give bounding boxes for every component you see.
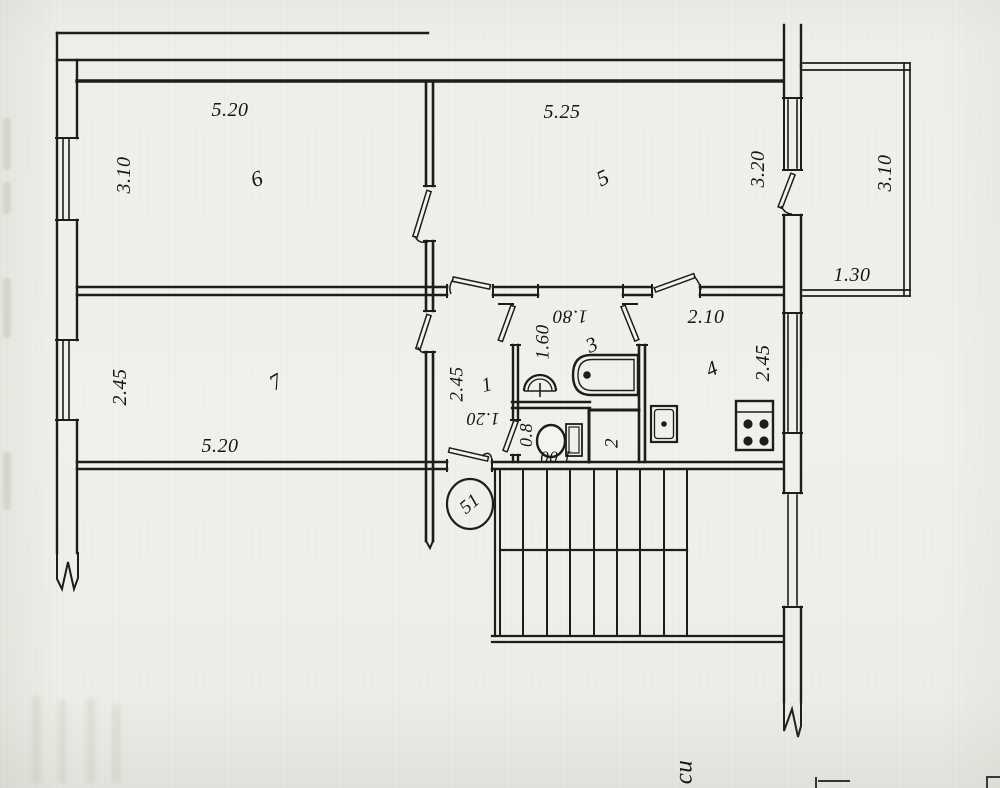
kitchen-sink-icon xyxy=(651,406,677,442)
door-leaf-icon xyxy=(498,304,515,342)
stove-icon xyxy=(736,401,773,450)
dimension-label: 3.10 xyxy=(114,157,134,194)
door-leaf-icon xyxy=(450,277,491,294)
margin-note: си xyxy=(672,760,697,785)
dimension-label: 5.20 xyxy=(212,100,249,120)
bath-sink-icon xyxy=(524,375,556,397)
exterior-walls xyxy=(57,25,801,737)
window-icon xyxy=(783,493,802,607)
dimension-label: 3.20 xyxy=(748,151,768,188)
window-icon xyxy=(56,340,78,420)
room-number-2: 2 xyxy=(603,438,622,448)
bathtub-icon xyxy=(573,355,638,395)
door-leaf-icon xyxy=(621,304,639,341)
scan-stamp-marks xyxy=(816,777,1000,788)
wc-compartment xyxy=(589,409,639,462)
window-icon xyxy=(783,313,802,433)
wall-break-symbol xyxy=(784,702,801,737)
dimension-label: 1.00 xyxy=(540,449,572,466)
dimension-label: 2.45 xyxy=(448,366,467,401)
dimension-label: 1.60 xyxy=(534,324,553,359)
dimension-label: 5.20 xyxy=(202,436,239,456)
floor-plan-scan: 5.20 3.10 6 5.25 5 3.20 3.10 1.30 2.10 4… xyxy=(0,0,1000,788)
dimension-label: 0.8 xyxy=(517,423,535,447)
dimension-label: 1.80 xyxy=(552,307,587,326)
dimension-label: 2.45 xyxy=(110,369,130,406)
dimension-label: 2.10 xyxy=(688,307,725,327)
door-leaf-icon xyxy=(654,274,701,292)
stairs-icon xyxy=(492,469,783,642)
wall-break-symbol xyxy=(426,541,433,548)
window-icon xyxy=(56,138,78,220)
door-leaf-icon xyxy=(413,190,431,242)
dimension-label: 5.25 xyxy=(544,102,581,122)
floor-plan-drawing xyxy=(0,0,1000,788)
dimension-label: 1.30 xyxy=(834,265,871,285)
dimension-label: 1.20 xyxy=(466,410,500,428)
door-leaf-icon xyxy=(416,314,431,352)
door-leaf-icon xyxy=(778,173,795,214)
dimension-label: 2.45 xyxy=(753,345,773,382)
door-leaf-icon xyxy=(449,448,492,461)
wall-break-symbol xyxy=(57,553,78,589)
dimension-label: 3.10 xyxy=(875,155,895,192)
